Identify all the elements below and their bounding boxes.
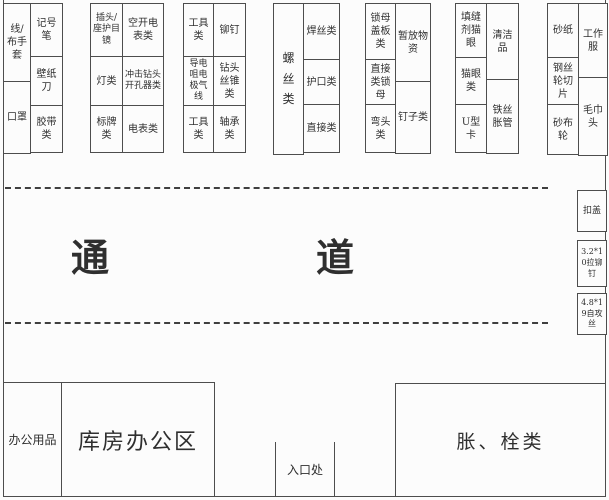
shelf-group: 砂纸钢丝轮切片砂布轮工作服毛巾头 [547,3,608,156]
aisle-dashed-line-top [5,187,548,189]
aisle-label-left: 通 [71,239,109,277]
rack-box-blind-rivets: 3.2*10拉铆钉 [577,240,607,287]
shelf-column: 焊丝类护口类直接类 [303,3,340,155]
shelf-cell: 清洁品 [486,3,519,80]
shelf-column: 工具类导电咀电极气线工具类 [183,3,214,153]
shelf-cell: 砂纸 [547,3,579,58]
shelf-cell: 弯头类 [365,104,396,153]
shelf-cell: 导电咀电极气线 [183,56,214,106]
office-supplies-area: 办公用品 [3,382,62,497]
warehouse-floor-plan: 线/布手套口罩记号笔壁纸刀胶带类插头/座护目镜灯类标牌类空开电表类冲击钻头开孔器… [0,0,609,500]
entrance-area: 入口处 [275,442,335,497]
shelf-column: 线/布手套口罩 [3,3,31,154]
shelf-cell: 轴承类 [213,105,246,153]
warehouse-office-area: 库房办公区 [61,382,215,497]
shelf-column: 铆钉钻头丝锥类轴承类 [213,3,246,153]
shelf-group: 线/布手套口罩记号笔壁纸刀胶带类 [3,3,63,154]
shelf-cell: 标牌类 [90,105,123,153]
shelf-cell: 锁母盖板类 [365,3,396,60]
shelf-cell: 焊丝类 [303,3,340,60]
shelf-cell: 钉子类 [395,81,431,154]
shelf-cell: 螺丝类 [273,3,304,155]
shelf-cell: 砂布轮 [547,104,579,155]
shelf-column: 工作服毛巾头 [578,3,608,156]
shelf-cell: 铁丝胀管 [486,79,519,154]
shelf-group: 锁母盖板类直接类锁母弯头类暂放物资钉子类 [365,3,431,154]
shelf-cell: 铆钉 [213,3,246,57]
aisle-dashed-line-bottom [5,322,548,324]
shelf-group: 工具类导电咀电极气线工具类铆钉钻头丝锥类轴承类 [183,3,246,153]
shelf-column: 填缝剂猫眼猫眼类U型卡 [455,3,487,154]
shelf-cell: 壁纸刀 [30,56,63,106]
shelf-column: 螺丝类 [273,3,304,155]
shelf-cell: 线/布手套 [3,3,31,82]
shelf-group: 填缝剂猫眼猫眼类U型卡清洁品铁丝胀管 [455,3,519,154]
shelf-cell: U型卡 [455,104,487,153]
shelf-cell: 钻头丝锥类 [213,56,246,106]
shelf-cell: 护口类 [303,59,340,105]
shelf-cell: 暂放物资 [395,3,431,82]
shelf-cell: 毛巾头 [578,77,608,156]
shelf-cell: 填缝剂猫眼 [455,3,487,58]
shelf-cell: 工作服 [578,3,608,78]
shelf-cell: 插头/座护目镜 [90,3,123,57]
expansion-bolt-area: 胀、栓类 [395,383,606,497]
shelf-cell: 工具类 [183,105,214,153]
rack-box-self-tapping-screws: 4.8*19自攻丝 [577,293,607,335]
shelf-cell: 胶带类 [30,105,63,153]
shelf-column: 暂放物资钉子类 [395,3,431,154]
shelf-cell: 空开电表类 [122,3,164,57]
shelf-group: 插头/座护目镜灯类标牌类空开电表类冲击钻头开孔器类电表类 [90,3,164,153]
shelf-group: 螺丝类焊丝类护口类直接类 [273,3,340,155]
shelf-cell: 冲击钻头开孔器类 [122,56,164,106]
shelf-cell: 记号笔 [30,3,63,57]
shelf-column: 锁母盖板类直接类锁母弯头类 [365,3,396,154]
shelf-cell: 直接类 [303,104,340,153]
shelf-cell: 猫眼类 [455,57,487,105]
shelf-cell: 电表类 [122,105,164,153]
shelf-column: 记号笔壁纸刀胶带类 [30,3,63,154]
aisle-label-right: 道 [316,239,354,277]
rack-box-cover-caps: 扣盖 [577,190,607,232]
shelf-cell: 工具类 [183,3,214,57]
shelf-column: 空开电表类冲击钻头开孔器类电表类 [122,3,164,153]
shelf-column: 清洁品铁丝胀管 [486,3,519,154]
shelf-column: 砂纸钢丝轮切片砂布轮 [547,3,579,156]
shelf-cell: 口罩 [3,81,31,154]
shelf-column: 插头/座护目镜灯类标牌类 [90,3,123,153]
shelf-cell: 直接类锁母 [365,59,396,105]
shelf-cell: 钢丝轮切片 [547,57,579,105]
shelf-cell: 灯类 [90,56,123,106]
